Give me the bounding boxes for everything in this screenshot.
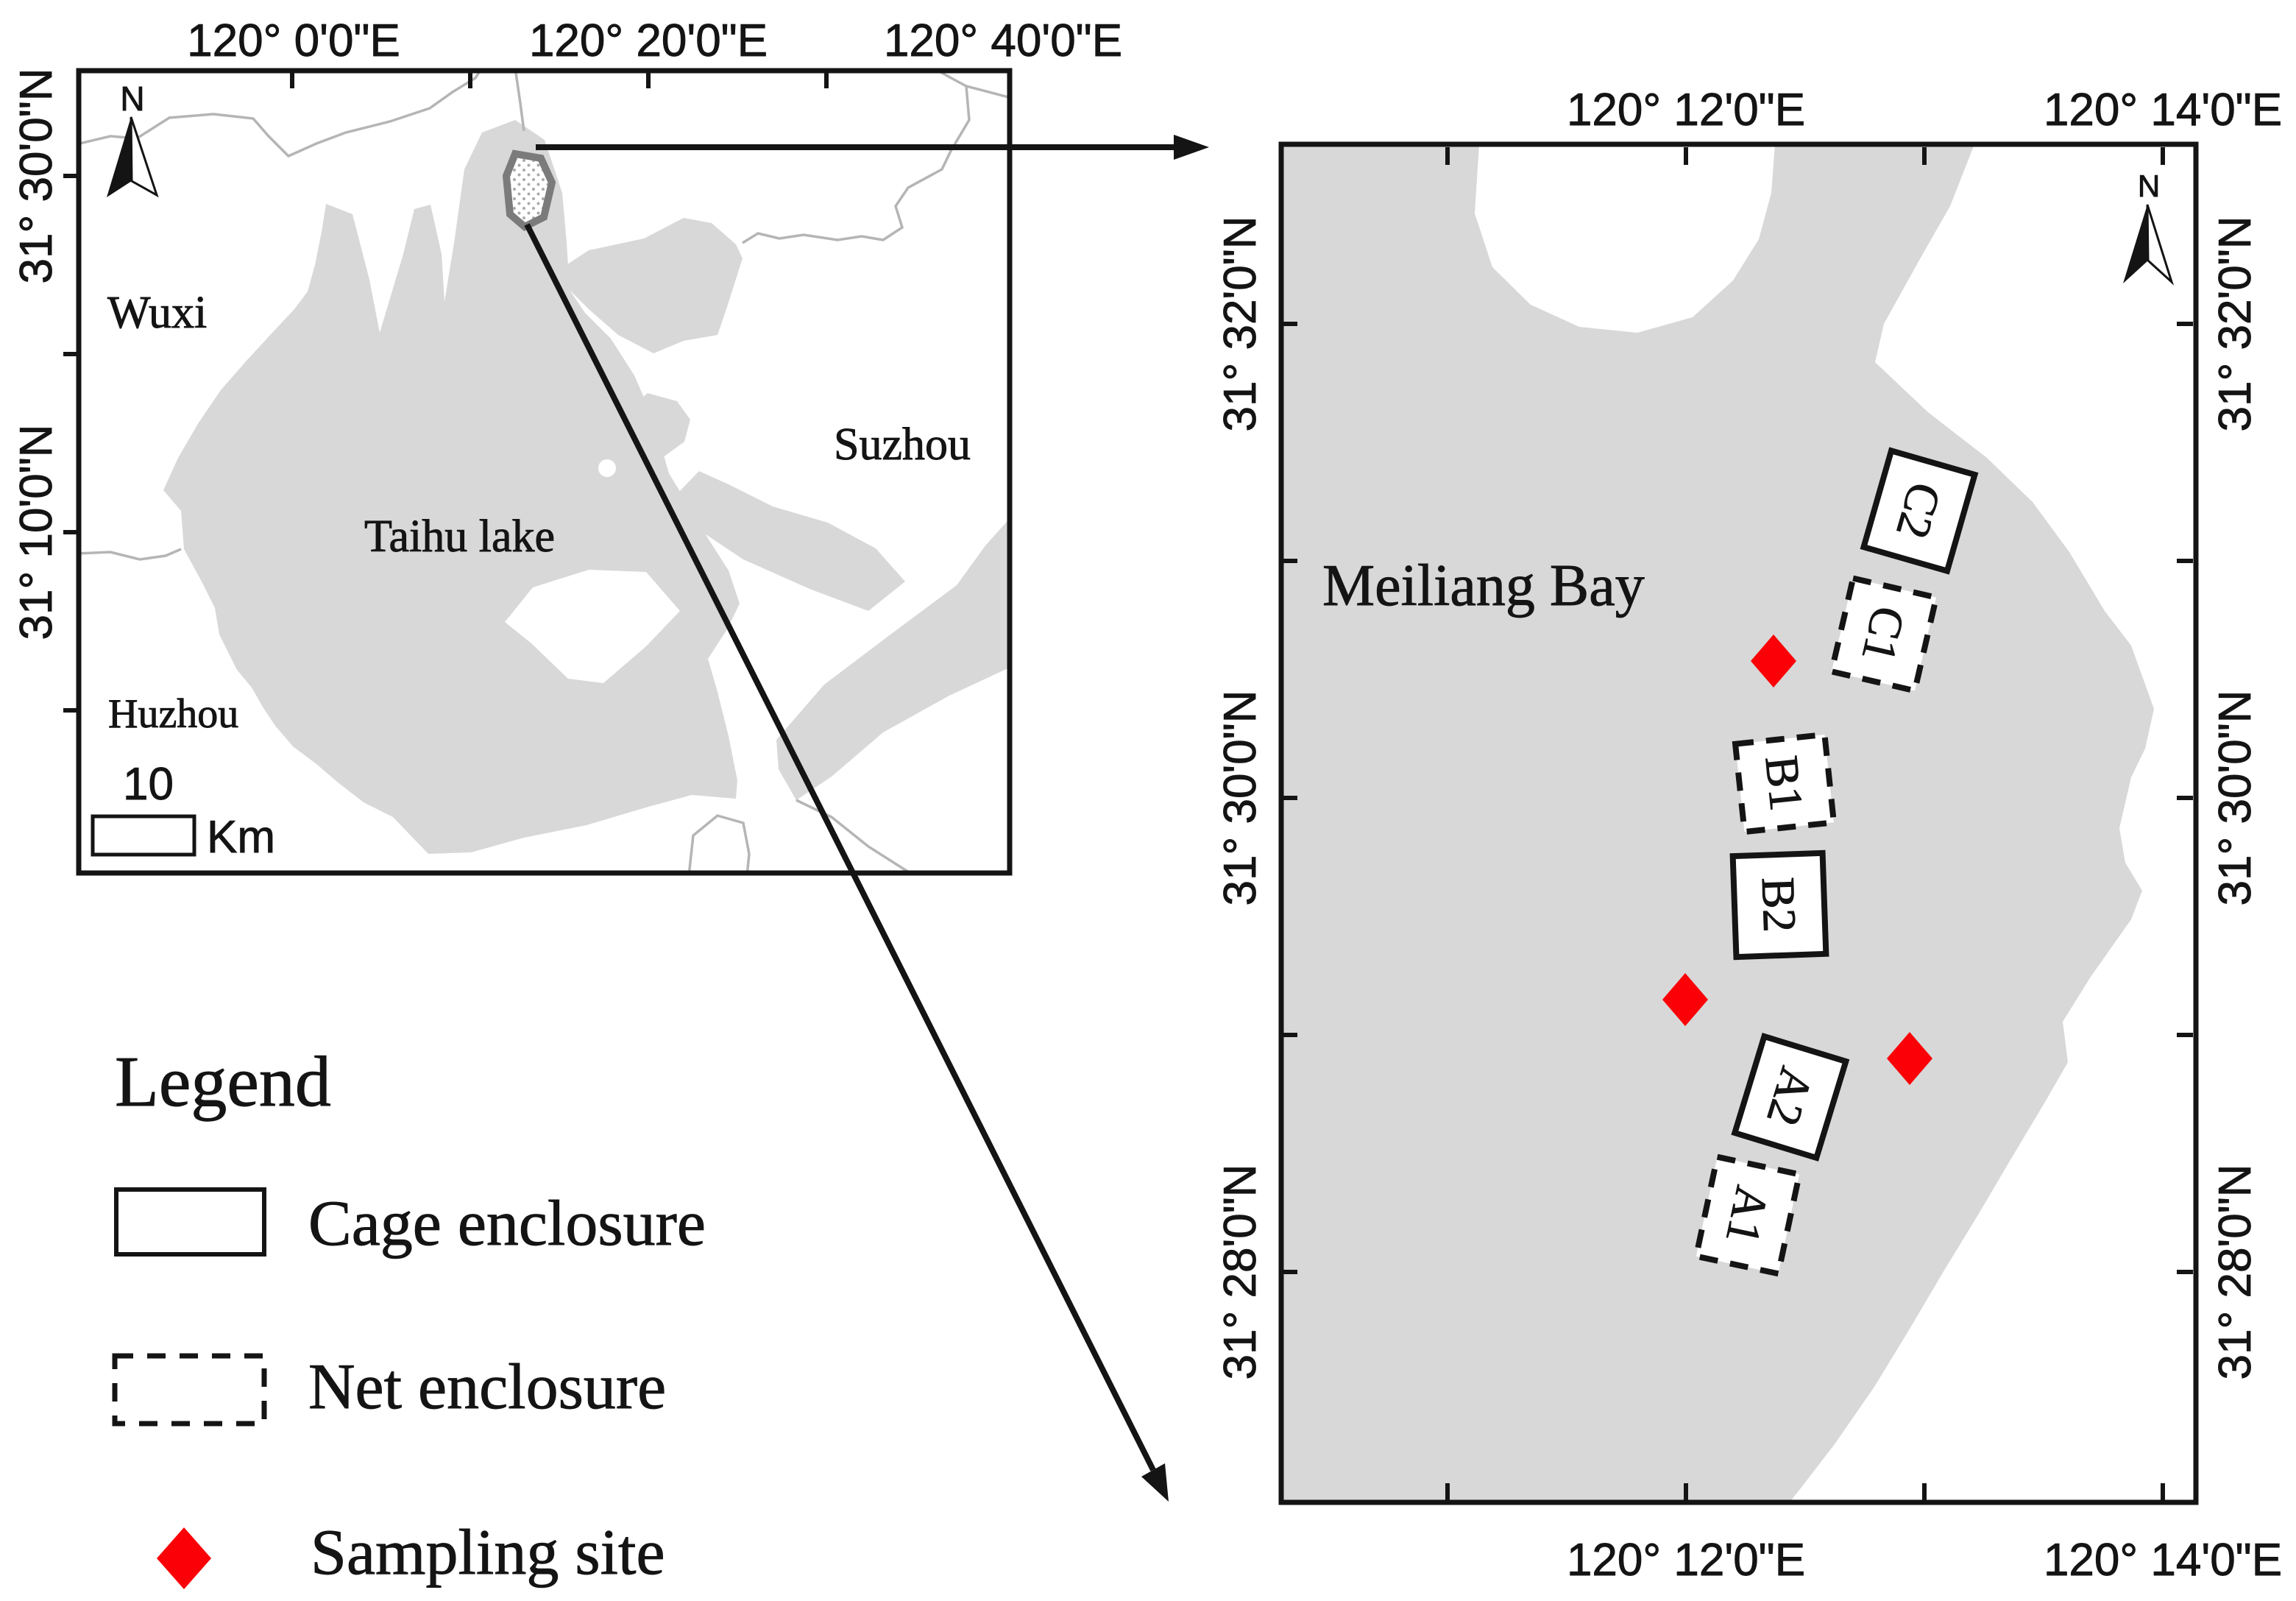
svg-text:120° 0'0"E: 120° 0'0"E xyxy=(187,15,400,66)
svg-text:120° 12'0"E: 120° 12'0"E xyxy=(1567,1535,1805,1586)
svg-text:Taihu lake: Taihu lake xyxy=(364,512,555,562)
svg-text:120° 14'0"E: 120° 14'0"E xyxy=(2044,1535,2282,1586)
svg-text:B2: B2 xyxy=(1752,876,1807,933)
svg-text:31° 10'0"N: 31° 10'0"N xyxy=(11,424,62,640)
svg-text:B1: B1 xyxy=(1755,753,1813,813)
svg-text:Meiliang Bay: Meiliang Bay xyxy=(1322,554,1645,618)
svg-text:N: N xyxy=(120,79,144,118)
svg-text:31° 32'0"N: 31° 32'0"N xyxy=(1215,216,1266,431)
svg-text:Huzhou: Huzhou xyxy=(108,691,238,737)
svg-text:120° 14'0"E: 120° 14'0"E xyxy=(2044,85,2282,135)
svg-text:N: N xyxy=(2138,169,2160,203)
svg-text:31° 28'0"N: 31° 28'0"N xyxy=(1215,1164,1266,1379)
svg-text:Legend: Legend xyxy=(115,1042,331,1122)
svg-text:31° 30'0"N: 31° 30'0"N xyxy=(1215,690,1266,905)
svg-text:Cage enclosure: Cage enclosure xyxy=(308,1188,706,1259)
svg-text:120° 20'0"E: 120° 20'0"E xyxy=(529,15,768,66)
svg-text:Net enclosure: Net enclosure xyxy=(308,1351,666,1423)
svg-text:31° 28'0"N: 31° 28'0"N xyxy=(2210,1164,2261,1379)
svg-text:31° 30'0"N: 31° 30'0"N xyxy=(11,68,62,283)
svg-text:Suzhou: Suzhou xyxy=(834,420,971,470)
svg-text:31° 30'0"N: 31° 30'0"N xyxy=(2210,690,2261,905)
svg-text:120° 12'0"E: 120° 12'0"E xyxy=(1567,85,1805,135)
svg-text:Sampling site: Sampling site xyxy=(311,1517,665,1588)
svg-text:31° 32'0"N: 31° 32'0"N xyxy=(2210,216,2261,431)
svg-text:10: 10 xyxy=(123,759,174,810)
svg-text:Km: Km xyxy=(207,812,275,863)
svg-text:Wuxi: Wuxi xyxy=(107,288,207,338)
svg-text:120° 40'0"E: 120° 40'0"E xyxy=(884,15,1122,66)
